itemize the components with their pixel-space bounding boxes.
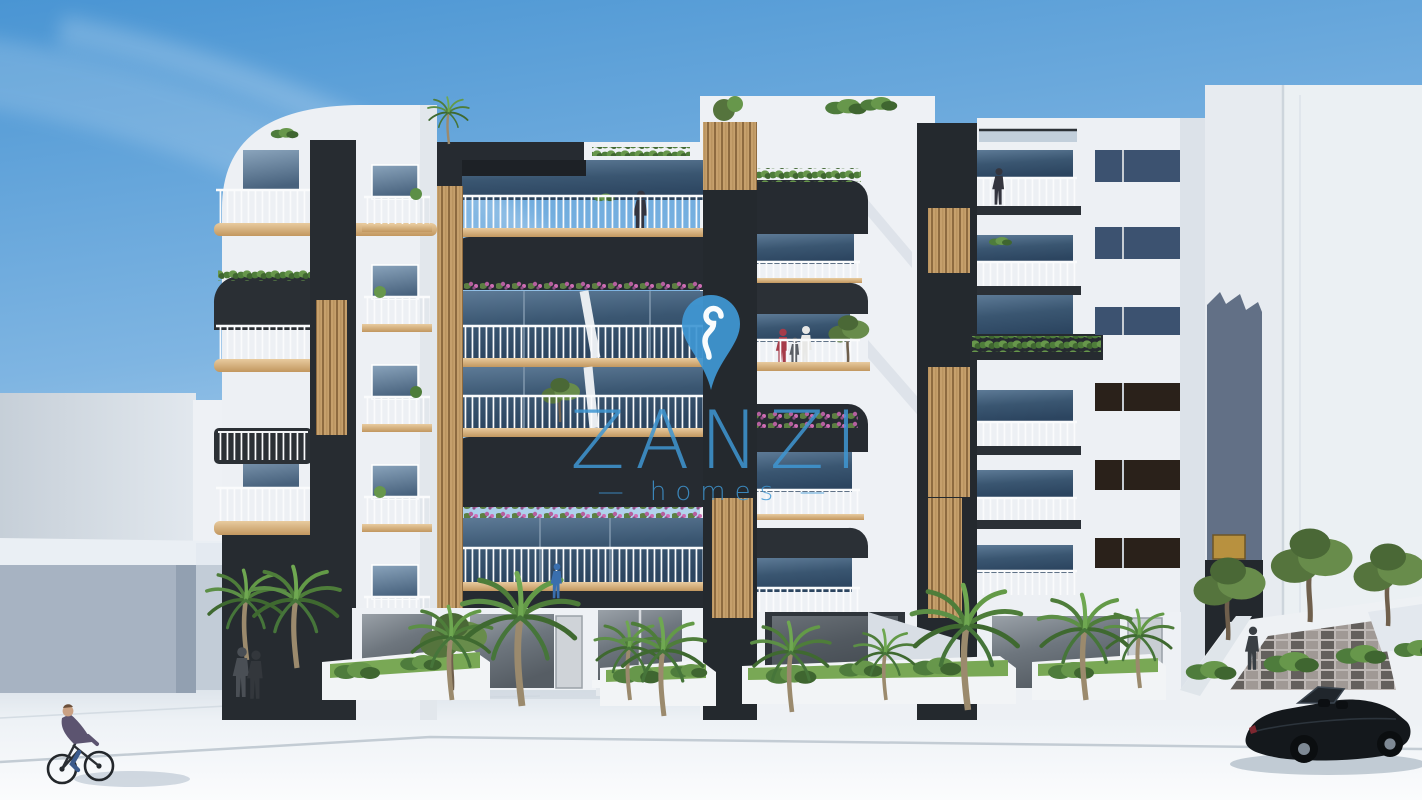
render-image: ZANZI — homes — [0, 0, 1422, 800]
brand-name: ZANZI [570, 394, 868, 487]
roof-hedge [592, 147, 690, 156]
flower-strip [460, 280, 708, 291]
wood-slat-panel [316, 300, 347, 435]
planter-center [600, 660, 716, 706]
brass-panel [1213, 535, 1245, 559]
flower-strip [460, 507, 708, 518]
center-left-section [428, 97, 712, 615]
wood-crown [703, 122, 757, 190]
planter-hedge [972, 336, 1101, 352]
wood-slat-column [437, 186, 463, 615]
wood-slat-panel [712, 498, 753, 618]
balcony-planting [757, 168, 861, 182]
brand-tagline: — homes — [598, 477, 835, 507]
planter-far-right [1032, 654, 1166, 700]
